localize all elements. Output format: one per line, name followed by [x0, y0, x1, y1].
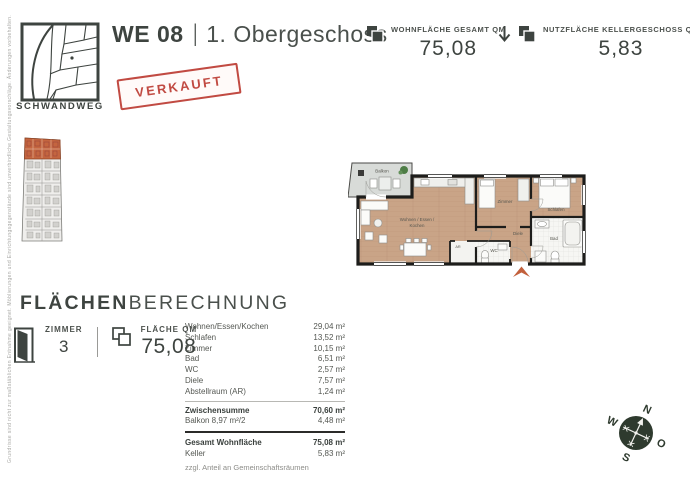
schwandweg-logo — [20, 22, 100, 102]
rooms-label: ZIMMER — [45, 325, 83, 334]
floor-name: 1. Obergeschoss — [206, 21, 387, 48]
heading-bold: FLÄCHEN — [20, 292, 129, 314]
room-label-bad: Bad — [550, 236, 558, 241]
room-label-ar: AR — [455, 245, 461, 249]
entrance-arrow-icon — [513, 267, 530, 278]
table-divider-thin — [185, 401, 345, 402]
title-divider: | — [193, 20, 197, 48]
area-squares-icon — [112, 327, 131, 346]
heading-light: BERECHNUNG — [129, 292, 290, 314]
overlapping-squares-icon — [518, 25, 536, 43]
room-label-balkon: Balkon — [375, 169, 389, 174]
overlapping-squares-icon — [366, 25, 384, 43]
rooms-value: 3 — [59, 337, 68, 357]
stat-cellar-label: NUTZFLÄCHE KELLERGESCHOSS QM — [543, 25, 690, 34]
logo-dot — [70, 56, 73, 59]
room-label-wc: WC — [490, 248, 497, 253]
door-icon — [14, 327, 35, 363]
table-row-subtotal: Zwischensumme70,60 m² — [185, 406, 345, 417]
stat-living-label: WOHNFLÄCHE GESAMT QM — [391, 25, 506, 34]
stat-living-value: 75,08 — [419, 37, 477, 61]
compass-label-west: W — [605, 414, 620, 430]
room-label-wohnen-2: Kochen — [410, 223, 425, 228]
arrow-down-icon — [498, 25, 511, 43]
table-row-total: Gesamt Wohnfläche75,08 m² — [185, 438, 345, 449]
stat-cellar-area: NUTZFLÄCHE KELLERGESCHOSS QM 5,83 — [498, 25, 690, 61]
area-table: Wohnen/Essen/Kochen29,04 m² Schlafen13,5… — [185, 322, 345, 472]
page-title: WE 08 | 1. Obergeschoss — [112, 20, 388, 48]
compass-label-north: N — [641, 403, 653, 417]
table-row: Bad6,51 m² — [185, 354, 345, 365]
room-label-diele: Diele — [513, 231, 524, 236]
table-footnote: zzgl. Anteil an Gemeinschaftsräumen — [185, 463, 345, 472]
brochure-page: SCHWANDWEG WE 08 | 1. Obergeschoss VERKA… — [0, 0, 690, 486]
unit-number: WE 08 — [112, 21, 184, 48]
storage-room-floor — [450, 241, 476, 264]
keystats-divider — [97, 327, 98, 357]
apartment-floor-plan: Balkon Wohnen / Essen / Kochen Zimmer Sc… — [348, 151, 588, 283]
table-row: Abstellraum (AR)1,24 m² — [185, 387, 345, 398]
table-row: Zimmer10,15 m² — [185, 344, 345, 355]
room-label-wohnen-1: Wohnen / Essen / — [400, 217, 435, 222]
compass-label-east: O — [655, 437, 668, 452]
building-key-plan — [20, 137, 64, 243]
stat-living-area: WOHNFLÄCHE GESAMT QM 75,08 — [366, 25, 506, 61]
room-label-schlafen: Schlafen — [547, 207, 565, 212]
compass-label-south: S — [620, 451, 632, 465]
table-row: Wohnen/Essen/Kochen29,04 m² — [185, 322, 345, 333]
compass-rose: N W O S — [601, 398, 671, 468]
sold-stamp: VERKAUFT — [116, 63, 242, 111]
key-stats: ZIMMER 3 FLÄCHE QM 75,08 — [14, 325, 197, 363]
table-row: Diele7,57 m² — [185, 376, 345, 387]
table-row: WC2,57 m² — [185, 365, 345, 376]
section-heading: FLÄCHENBERECHNUNG — [20, 292, 289, 315]
brand-name: SCHWANDWEG — [16, 101, 104, 112]
table-row: Schlafen13,52 m² — [185, 333, 345, 344]
table-row: Balkon 8,97 m²/24,48 m² — [185, 416, 345, 427]
table-row: Keller5,83 m² — [185, 449, 345, 460]
room-label-zimmer: Zimmer — [498, 199, 513, 204]
table-divider-thick — [185, 431, 345, 433]
disclaimer-vertical-text: Grundrisse sind nicht zur maßstäblichen … — [4, 23, 16, 463]
stat-cellar-value: 5,83 — [599, 37, 644, 61]
